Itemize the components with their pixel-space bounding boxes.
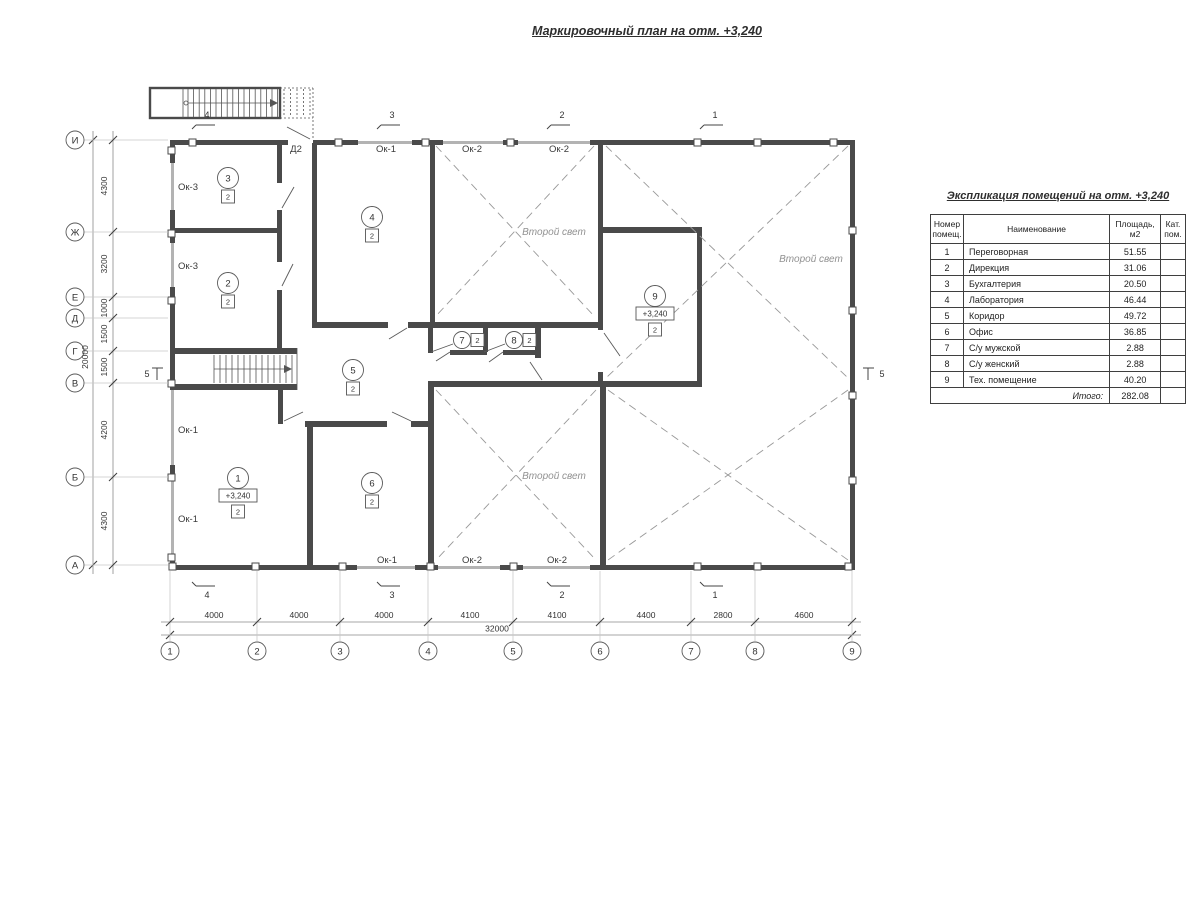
- window-mark: [252, 563, 259, 570]
- window-mark: [339, 563, 346, 570]
- window-mark: [169, 563, 176, 570]
- table-row: 1Переговорная51.55: [931, 244, 1186, 260]
- section-marker-tick: [547, 582, 551, 586]
- window-mark: [510, 563, 517, 570]
- table-cell: [1161, 244, 1186, 260]
- table-cell: 9: [931, 372, 964, 388]
- table-cell: 8: [931, 356, 964, 372]
- window-mark: [168, 554, 175, 561]
- table-cell: 49.72: [1110, 308, 1161, 324]
- axis-label: 8: [752, 647, 757, 658]
- dimension-value: 4000: [205, 610, 224, 620]
- table-row: 6Офис36.85: [931, 324, 1186, 340]
- table-cell: 20.50: [1110, 276, 1161, 292]
- table-cell: 5: [931, 308, 964, 324]
- section-marker-label: 5: [879, 369, 884, 379]
- dimension-value: 2800: [714, 610, 733, 620]
- category-value: 2: [653, 326, 657, 335]
- window-label: Ок-1: [178, 514, 198, 525]
- void-label: Второй свет: [522, 227, 586, 238]
- dimension-value: 4000: [375, 610, 394, 620]
- table-cell: 31.06: [1110, 260, 1161, 276]
- table-cell: 40.20: [1110, 372, 1161, 388]
- window-label: Ок-1: [376, 144, 396, 155]
- axis-label: И: [72, 136, 79, 147]
- axis-label: Г: [72, 347, 77, 358]
- table-cell: [1161, 324, 1186, 340]
- table-cell: 2.88: [1110, 340, 1161, 356]
- category-value: 2: [226, 298, 230, 307]
- table-header: Номер помещ.: [931, 215, 964, 244]
- window-mark: [168, 147, 175, 154]
- table-cell: [1161, 292, 1186, 308]
- window-mark: [189, 139, 196, 146]
- door-label: Д2: [290, 144, 302, 155]
- window-mark: [754, 563, 761, 570]
- table-cell: Бухгалтерия: [963, 276, 1109, 292]
- table-cell: С/у женский: [963, 356, 1109, 372]
- section-marker-label: 3: [389, 590, 394, 600]
- dimension-total: 20000: [80, 345, 90, 369]
- table-cell: 4: [931, 292, 964, 308]
- dimension-value: 1500: [99, 357, 109, 376]
- window-label: Ок-1: [377, 555, 397, 566]
- dimension-total: 32000: [485, 624, 509, 634]
- dimension-value: 4400: [637, 610, 656, 620]
- table-cell: [1161, 340, 1186, 356]
- table-cell: Тех. помещение: [963, 372, 1109, 388]
- table-row: 5Коридор49.72: [931, 308, 1186, 324]
- dimension-value: 4000: [290, 610, 309, 620]
- section-marker-label: 1: [712, 590, 717, 600]
- drawing-canvas: Маркировочный план на отм. +3,240: [0, 0, 1200, 900]
- section-marker-tick: [377, 582, 381, 586]
- dimension-value: 4200: [99, 420, 109, 439]
- interior-walls: [170, 143, 702, 566]
- room-number: 2: [225, 279, 230, 290]
- section-marker-label: 2: [559, 590, 564, 600]
- window-label: Ок-1: [178, 425, 198, 436]
- axis-label: 9: [849, 647, 854, 658]
- explication-panel: Экспликация помещений на отм. +3,240 Ном…: [930, 190, 1186, 404]
- void-diagonals: [436, 146, 848, 560]
- floor-plan: ИЖЕДГВБА12345678943003200100015001500420…: [0, 0, 1200, 900]
- table-cell: Коридор: [963, 308, 1109, 324]
- table-cell: Офис: [963, 324, 1109, 340]
- axis-label: 2: [254, 647, 259, 658]
- window-mark: [168, 474, 175, 481]
- section-marker-tick: [377, 125, 381, 129]
- section-marker-label: 4: [204, 590, 209, 600]
- window-mark: [507, 139, 514, 146]
- table-cell: Лаборатория: [963, 292, 1109, 308]
- axis-label: Ж: [71, 228, 80, 239]
- axis-label: В: [72, 379, 78, 390]
- axis-label: 6: [597, 647, 602, 658]
- table-row: 2Дирекция31.06: [931, 260, 1186, 276]
- table-row: 4Лаборатория46.44: [931, 292, 1186, 308]
- axis-label: Е: [72, 293, 78, 304]
- table-cell: [1161, 372, 1186, 388]
- category-value: 2: [370, 232, 374, 241]
- room-number: 6: [369, 479, 374, 490]
- section-marker-label: 2: [559, 110, 564, 120]
- window-mark: [168, 297, 175, 304]
- section-marker-tick: [192, 125, 196, 129]
- table-header: Наименование: [963, 215, 1109, 244]
- window-label: Ок-3: [178, 182, 198, 193]
- axis-label: 1: [167, 647, 172, 658]
- category-value: 2: [236, 508, 240, 517]
- table-cell: С/у мужской: [963, 340, 1109, 356]
- dimension-value: 1500: [99, 324, 109, 343]
- elevation-value: +3,240: [643, 310, 668, 319]
- window-mark: [849, 477, 856, 484]
- window-mark: [849, 227, 856, 234]
- window-mark: [427, 563, 434, 570]
- table-title: Экспликация помещений на отм. +3,240: [930, 190, 1186, 202]
- window-label: Ок-2: [547, 555, 567, 566]
- table-header: Площадь, м2: [1110, 215, 1161, 244]
- room-number: 4: [369, 213, 374, 224]
- dimension-value: 4300: [99, 176, 109, 195]
- section-marker-tick: [192, 582, 196, 586]
- table-cell: [1161, 308, 1186, 324]
- dimension-value: 4300: [99, 511, 109, 530]
- window-mark: [849, 392, 856, 399]
- table-header: Кат. пом.: [1161, 215, 1186, 244]
- table-total-row: Итого:282.08: [931, 388, 1186, 404]
- interior-stair: [214, 348, 297, 390]
- exterior-stair: [150, 88, 313, 140]
- total-value: 282.08: [1110, 388, 1161, 404]
- table-cell: 2.88: [1110, 356, 1161, 372]
- window-mark: [830, 139, 837, 146]
- table-row: 8С/у женский2.88: [931, 356, 1186, 372]
- window-label: Ок-2: [462, 555, 482, 566]
- door-swings: [282, 127, 620, 421]
- room-number: 9: [652, 292, 657, 303]
- table-cell: 2: [931, 260, 964, 276]
- axis-label: 4: [425, 647, 430, 658]
- window-label: Ок-3: [178, 261, 198, 272]
- table-cell: 7: [931, 340, 964, 356]
- window-mark: [168, 230, 175, 237]
- dimension-value: 4100: [548, 610, 567, 620]
- room-number: 5: [350, 366, 355, 377]
- table-cell: [1161, 276, 1186, 292]
- table-cell: 36.85: [1110, 324, 1161, 340]
- table-cell: [1161, 260, 1186, 276]
- room-number: 7: [459, 336, 464, 347]
- room-number: 8: [511, 336, 516, 347]
- axis-label: 5: [510, 647, 515, 658]
- window-mark: [335, 139, 342, 146]
- table-cell: 6: [931, 324, 964, 340]
- category-value: 2: [226, 193, 230, 202]
- window-mark: [694, 563, 701, 570]
- axis-label: Д: [72, 314, 79, 325]
- window-mark: [422, 139, 429, 146]
- section-marker-label: 1: [712, 110, 717, 120]
- elevation-value: +3,240: [226, 492, 251, 501]
- table-row: 7С/у мужской2.88: [931, 340, 1186, 356]
- axis-label: Б: [72, 473, 78, 484]
- total-label: Итого:: [931, 388, 1110, 404]
- table-cell: 46.44: [1110, 292, 1161, 308]
- room-number: 1: [235, 474, 240, 485]
- table-cell: Дирекция: [963, 260, 1109, 276]
- section-marker-label: 3: [389, 110, 394, 120]
- window-mark: [754, 139, 761, 146]
- table-cell: 51.55: [1110, 244, 1161, 260]
- window-label: Ок-2: [462, 144, 482, 155]
- dimension-value: 1000: [99, 298, 109, 317]
- section-marker-tick: [700, 125, 704, 129]
- void-label: Второй свет: [522, 471, 586, 482]
- category-value: 2: [351, 385, 355, 394]
- section-marker-tick: [700, 582, 704, 586]
- dimension-value: 3200: [99, 254, 109, 273]
- window-mark: [694, 139, 701, 146]
- category-value: 2: [370, 498, 374, 507]
- dimension-value: 4100: [461, 610, 480, 620]
- table-cell: Переговорная: [963, 244, 1109, 260]
- section-marker-label: 5: [144, 369, 149, 379]
- category-value: 2: [527, 336, 531, 345]
- void-label: Второй свет: [779, 254, 843, 265]
- window-mark: [168, 380, 175, 387]
- dimension-value: 4600: [795, 610, 814, 620]
- window-mark: [845, 563, 852, 570]
- explication-table: Номер помещ.НаименованиеПлощадь, м2Кат. …: [930, 214, 1186, 404]
- window-label: Ок-2: [549, 144, 569, 155]
- window-mark: [849, 307, 856, 314]
- table-cell: [1161, 356, 1186, 372]
- axis-label: 7: [688, 647, 693, 658]
- table-cell: 3: [931, 276, 964, 292]
- category-value: 2: [475, 336, 479, 345]
- axis-label: А: [72, 561, 79, 572]
- table-row: 9Тех. помещение40.20: [931, 372, 1186, 388]
- section-marker-tick: [547, 125, 551, 129]
- table-cell: [1161, 388, 1186, 404]
- room-number: 3: [225, 174, 230, 185]
- table-cell: 1: [931, 244, 964, 260]
- axis-label: 3: [337, 647, 342, 658]
- table-row: 3Бухгалтерия20.50: [931, 276, 1186, 292]
- section-marker-label: 4: [204, 110, 209, 120]
